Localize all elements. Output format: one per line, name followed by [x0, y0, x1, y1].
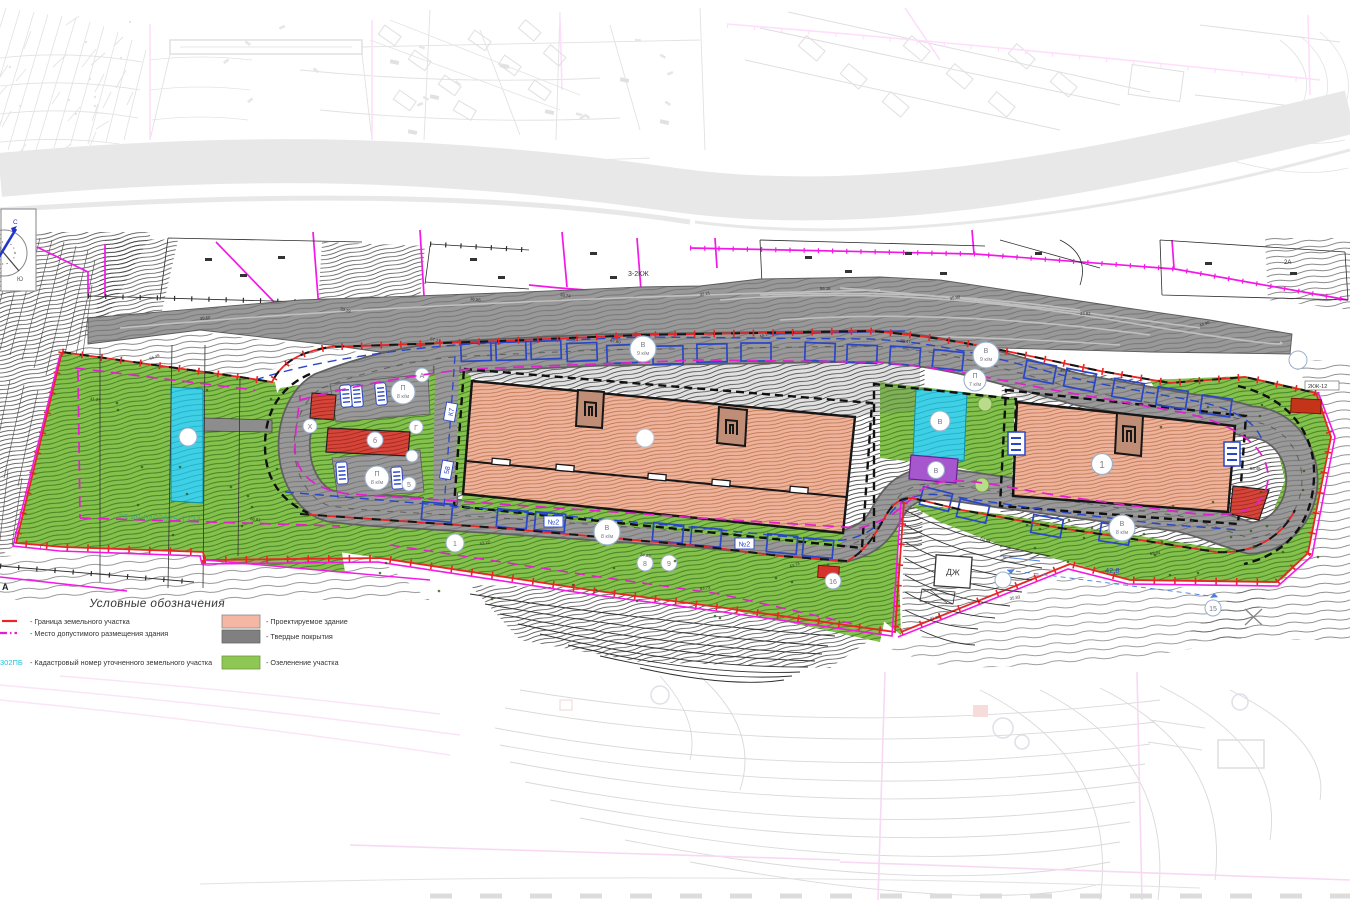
svg-text:П: П: [400, 385, 405, 392]
svg-text:Г: Г: [414, 425, 418, 432]
svg-text:15: 15: [1209, 606, 1217, 613]
svg-text:В: В: [984, 348, 989, 355]
svg-text:П: П: [374, 471, 379, 478]
svg-text:56.18: 56.18: [820, 286, 831, 291]
svg-text:б: б: [373, 437, 377, 445]
svg-text:А: А: [2, 582, 9, 592]
svg-text:№2: №2: [739, 542, 751, 549]
svg-text:8 к/м: 8 к/м: [371, 480, 384, 486]
svg-text:33.82: 33.82: [1080, 311, 1091, 316]
svg-text:2КЖ-12: 2КЖ-12: [1308, 384, 1327, 390]
svg-text:В: В: [1120, 521, 1125, 528]
svg-text:16: 16: [829, 579, 837, 586]
svg-text:7 к/м: 7 к/м: [969, 382, 982, 388]
svg-text:В: В: [641, 342, 646, 349]
svg-text:- Кадастровый номер уточненног: - Кадастровый номер уточненного земельно…: [30, 658, 212, 667]
svg-text:- Граница земельного участка: - Граница земельного участка: [30, 617, 130, 626]
svg-text:39.79: 39.79: [1060, 368, 1071, 373]
svg-text:8 к/м: 8 к/м: [397, 394, 410, 400]
svg-text:В: В: [937, 417, 942, 426]
svg-text:- Твердые покрытия: - Твердые покрытия: [266, 632, 333, 641]
svg-text:63.73: 63.73: [700, 585, 712, 591]
svg-text:- Место допустимого размещения: - Место допустимого размещения здания: [30, 629, 168, 638]
svg-text:53.48: 53.48: [1250, 466, 1261, 471]
svg-text:- Озеленение участка: - Озеленение участка: [266, 658, 339, 667]
svg-text:58: 58: [444, 466, 452, 475]
svg-text:С: С: [13, 219, 18, 226]
svg-text:2А: 2А: [1284, 260, 1291, 266]
svg-text:9 к/м: 9 к/м: [637, 351, 650, 357]
svg-text:9: 9: [667, 561, 671, 568]
svg-text:1: 1: [1099, 460, 1105, 471]
svg-text:№2: №2: [548, 520, 560, 527]
svg-text:Х: Х: [308, 424, 313, 431]
svg-text:302ПБ: 302ПБ: [0, 658, 23, 667]
svg-text:3-2КЖ: 3-2КЖ: [628, 271, 649, 278]
svg-text:Ю: Ю: [17, 277, 23, 283]
svg-text:8 к/м: 8 к/м: [1116, 530, 1129, 536]
svg-text:П: П: [972, 373, 977, 380]
svg-text:8: 8: [643, 561, 647, 568]
svg-text:5: 5: [407, 482, 411, 489]
svg-text:42.8: 42.8: [1105, 566, 1120, 575]
svg-text:В: В: [934, 468, 939, 475]
svg-text:В: В: [605, 525, 610, 532]
svg-text:9 к/м: 9 к/м: [980, 357, 993, 363]
svg-text:ДЖ: ДЖ: [946, 567, 960, 578]
svg-text:1: 1: [453, 541, 457, 548]
svg-text:8 к/м: 8 к/м: [601, 534, 614, 540]
svg-text:- Проектируемое здание: - Проектируемое здание: [266, 617, 348, 626]
svg-text:Условные обозначения: Условные обозначения: [89, 596, 226, 610]
svg-text:39.60: 39.60: [200, 315, 212, 321]
svg-text:К7: К7: [448, 408, 456, 417]
